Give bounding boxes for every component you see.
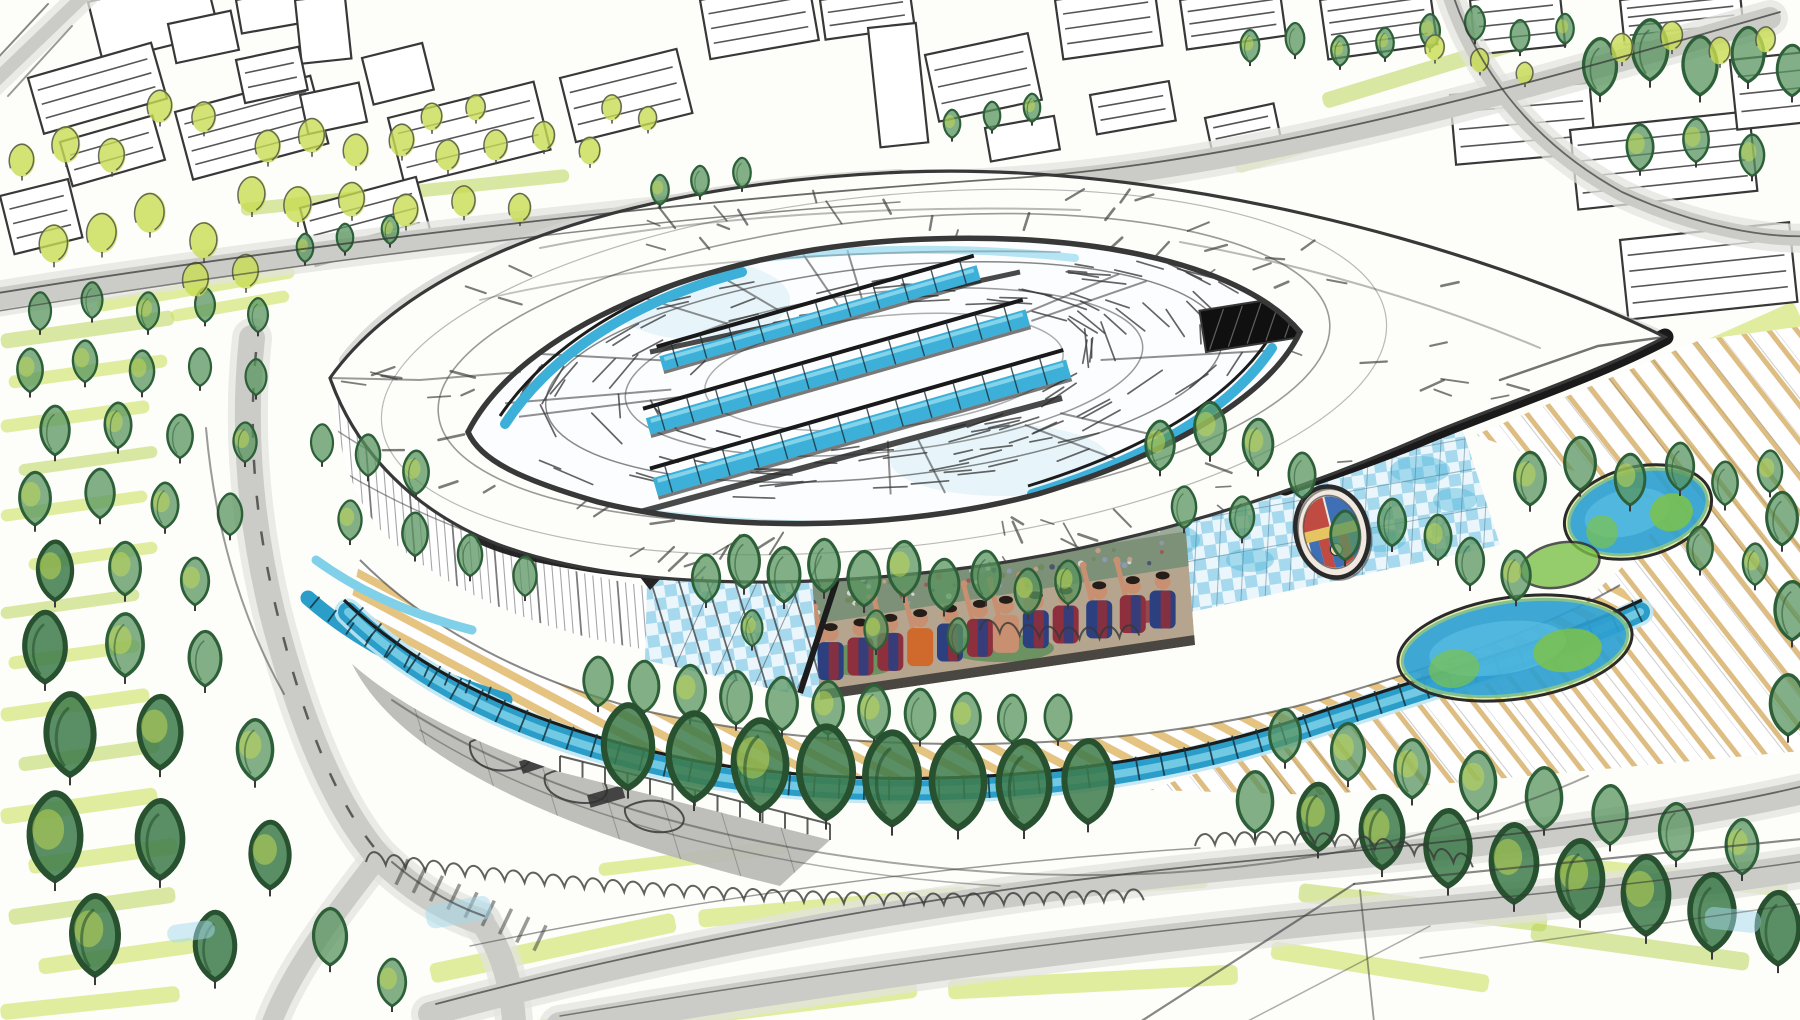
- tree-canopy: [584, 657, 613, 706]
- crowd-speck: [966, 578, 970, 582]
- tree-canopy: [1270, 709, 1301, 762]
- tree-highlight: [1557, 19, 1568, 33]
- tree-canopy: [733, 158, 751, 188]
- tree-canopy: [1687, 527, 1712, 570]
- tree-highlight: [19, 357, 35, 377]
- tree-highlight: [32, 809, 64, 849]
- crowd-speck: [1038, 564, 1044, 570]
- tree-canopy: [1172, 487, 1196, 528]
- tree-highlight: [1421, 20, 1433, 36]
- tree-highlight: [141, 709, 167, 742]
- tree-highlight: [953, 702, 971, 725]
- tree-highlight: [183, 567, 200, 589]
- figure-hair: [913, 609, 927, 617]
- tree-highlight: [1685, 127, 1701, 147]
- figure-kit-stripe: [1161, 590, 1171, 628]
- crowd-speck: [1122, 562, 1128, 568]
- tree-canopy: [848, 551, 880, 606]
- tree-canopy: [721, 671, 752, 724]
- tree-canopy: [692, 555, 719, 602]
- tree-highlight: [676, 675, 695, 700]
- tree-highlight: [1741, 142, 1756, 161]
- tree-canopy: [248, 298, 268, 332]
- tree-canopy: [998, 695, 1025, 742]
- tree-canopy: [1331, 511, 1360, 560]
- figure-fist: [1113, 557, 1120, 564]
- tree-highlight: [1628, 133, 1645, 154]
- tree-canopy: [46, 694, 93, 775]
- tree-highlight: [40, 552, 62, 579]
- tree-canopy: [86, 469, 115, 518]
- crowd-speck: [1112, 548, 1116, 552]
- tree-canopy: [311, 424, 333, 462]
- crowd-speck: [1147, 561, 1151, 565]
- tree-canopy: [25, 612, 66, 682]
- tree-highlight: [652, 180, 663, 194]
- tree-canopy: [1767, 492, 1798, 545]
- tree-highlight: [945, 115, 955, 128]
- crowd-speck: [1049, 564, 1055, 570]
- tree-canopy: [799, 727, 852, 818]
- tree-canopy: [929, 559, 959, 610]
- tree-canopy: [1230, 497, 1254, 538]
- tree-canopy: [1289, 453, 1315, 498]
- tree-canopy: [513, 556, 536, 596]
- glass-shade-patch: [1390, 456, 1450, 484]
- sketch-stage: [0, 0, 1800, 1020]
- tree-canopy: [1526, 768, 1561, 828]
- crowd-speck: [1095, 548, 1100, 553]
- figure-hair: [999, 596, 1013, 604]
- tree-highlight: [1426, 523, 1443, 544]
- figure-fist: [960, 580, 967, 587]
- tree-highlight: [74, 348, 89, 367]
- tree-canopy: [189, 631, 221, 686]
- crowd-speck: [1102, 557, 1107, 562]
- tree-highlight: [1759, 458, 1774, 477]
- figure-hair: [1092, 581, 1106, 589]
- roof-tick: [1360, 361, 1386, 363]
- tree-canopy: [1565, 437, 1596, 490]
- tree-canopy: [865, 733, 918, 824]
- tree-canopy: [337, 224, 353, 252]
- tree-highlight: [111, 552, 130, 577]
- tree-highlight: [1626, 871, 1654, 907]
- tree-canopy: [984, 102, 1000, 130]
- tree-canopy: [458, 535, 482, 576]
- crowd-speck: [882, 580, 886, 584]
- tree-canopy: [1286, 23, 1305, 55]
- tree-canopy: [1511, 20, 1530, 52]
- tree-canopy: [402, 513, 427, 556]
- tree-highlight: [21, 482, 40, 507]
- crowd-speck: [845, 598, 850, 603]
- tree-highlight: [1333, 734, 1354, 760]
- tree-canopy: [356, 435, 380, 476]
- tree-highlight: [890, 551, 910, 577]
- tree-canopy: [138, 801, 183, 878]
- figure-kit-stripe: [858, 637, 868, 675]
- seat-hatch: [1000, 298, 1027, 299]
- glass-shade-patch: [1433, 488, 1477, 512]
- tree-canopy: [972, 551, 1001, 600]
- figure-torso: [907, 628, 933, 666]
- figure-hair: [1156, 571, 1170, 579]
- tree-canopy: [1465, 6, 1485, 40]
- crowd-speck: [1007, 568, 1012, 573]
- tree-highlight: [253, 834, 277, 865]
- figure-hair: [824, 623, 838, 631]
- tree-canopy: [1593, 786, 1627, 844]
- tree-canopy: [41, 406, 70, 455]
- tree-canopy: [932, 739, 984, 828]
- tree-canopy: [1666, 443, 1693, 490]
- tree-highlight: [1617, 463, 1636, 487]
- tree-highlight: [1462, 763, 1484, 791]
- tree-highlight: [814, 691, 833, 716]
- tree-canopy: [1045, 695, 1071, 740]
- roof-tick: [1338, 461, 1352, 462]
- crowd-speck: [1092, 557, 1096, 561]
- tree-canopy: [729, 535, 760, 588]
- tree-canopy: [314, 909, 347, 965]
- tree-highlight: [1196, 412, 1215, 437]
- tree-highlight: [866, 618, 881, 636]
- crowd-speck: [1160, 550, 1164, 554]
- roof-tick: [1216, 486, 1231, 487]
- figure-hair: [1126, 576, 1140, 584]
- figure-kit-stripe: [829, 642, 839, 680]
- tree-canopy: [1757, 893, 1799, 964]
- figure-hair: [973, 600, 987, 608]
- tree-canopy: [1712, 462, 1737, 505]
- tree-canopy: [948, 618, 969, 654]
- tree-canopy: [809, 539, 840, 592]
- seat-hatch: [1200, 325, 1201, 344]
- tree-canopy: [768, 547, 800, 602]
- tree-highlight: [340, 508, 355, 526]
- tree-canopy: [29, 292, 51, 330]
- tree-canopy: [167, 415, 192, 458]
- crowd-speck: [911, 593, 914, 596]
- tree-canopy: [82, 282, 103, 318]
- tree-canopy: [669, 713, 719, 800]
- building-outline: [295, 0, 351, 64]
- tree-canopy: [1064, 741, 1111, 822]
- tree-highlight: [1016, 577, 1033, 598]
- figure-kit-stripe: [888, 633, 898, 671]
- crowd-speck: [924, 583, 928, 587]
- figure-torso: [993, 615, 1019, 653]
- building: [295, 0, 351, 64]
- stadium-sketch-canvas: [0, 0, 1800, 1020]
- roof-tick: [1266, 258, 1284, 259]
- tree-canopy: [189, 348, 211, 386]
- tree-canopy: [691, 166, 709, 196]
- tree-canopy: [604, 705, 652, 788]
- tree-canopy: [1378, 499, 1405, 546]
- figure-kit-stripe: [1064, 606, 1074, 644]
- tree-canopy: [1456, 538, 1483, 585]
- tree-canopy: [905, 689, 935, 740]
- tree-highlight: [131, 358, 146, 377]
- tree-canopy: [1237, 772, 1272, 832]
- tree-canopy: [246, 359, 267, 395]
- tree-highlight: [380, 968, 397, 990]
- crowd-speck: [1159, 541, 1164, 546]
- crowd-speck: [1127, 557, 1132, 562]
- figure-fist: [1080, 562, 1087, 569]
- tree-canopy: [999, 741, 1049, 828]
